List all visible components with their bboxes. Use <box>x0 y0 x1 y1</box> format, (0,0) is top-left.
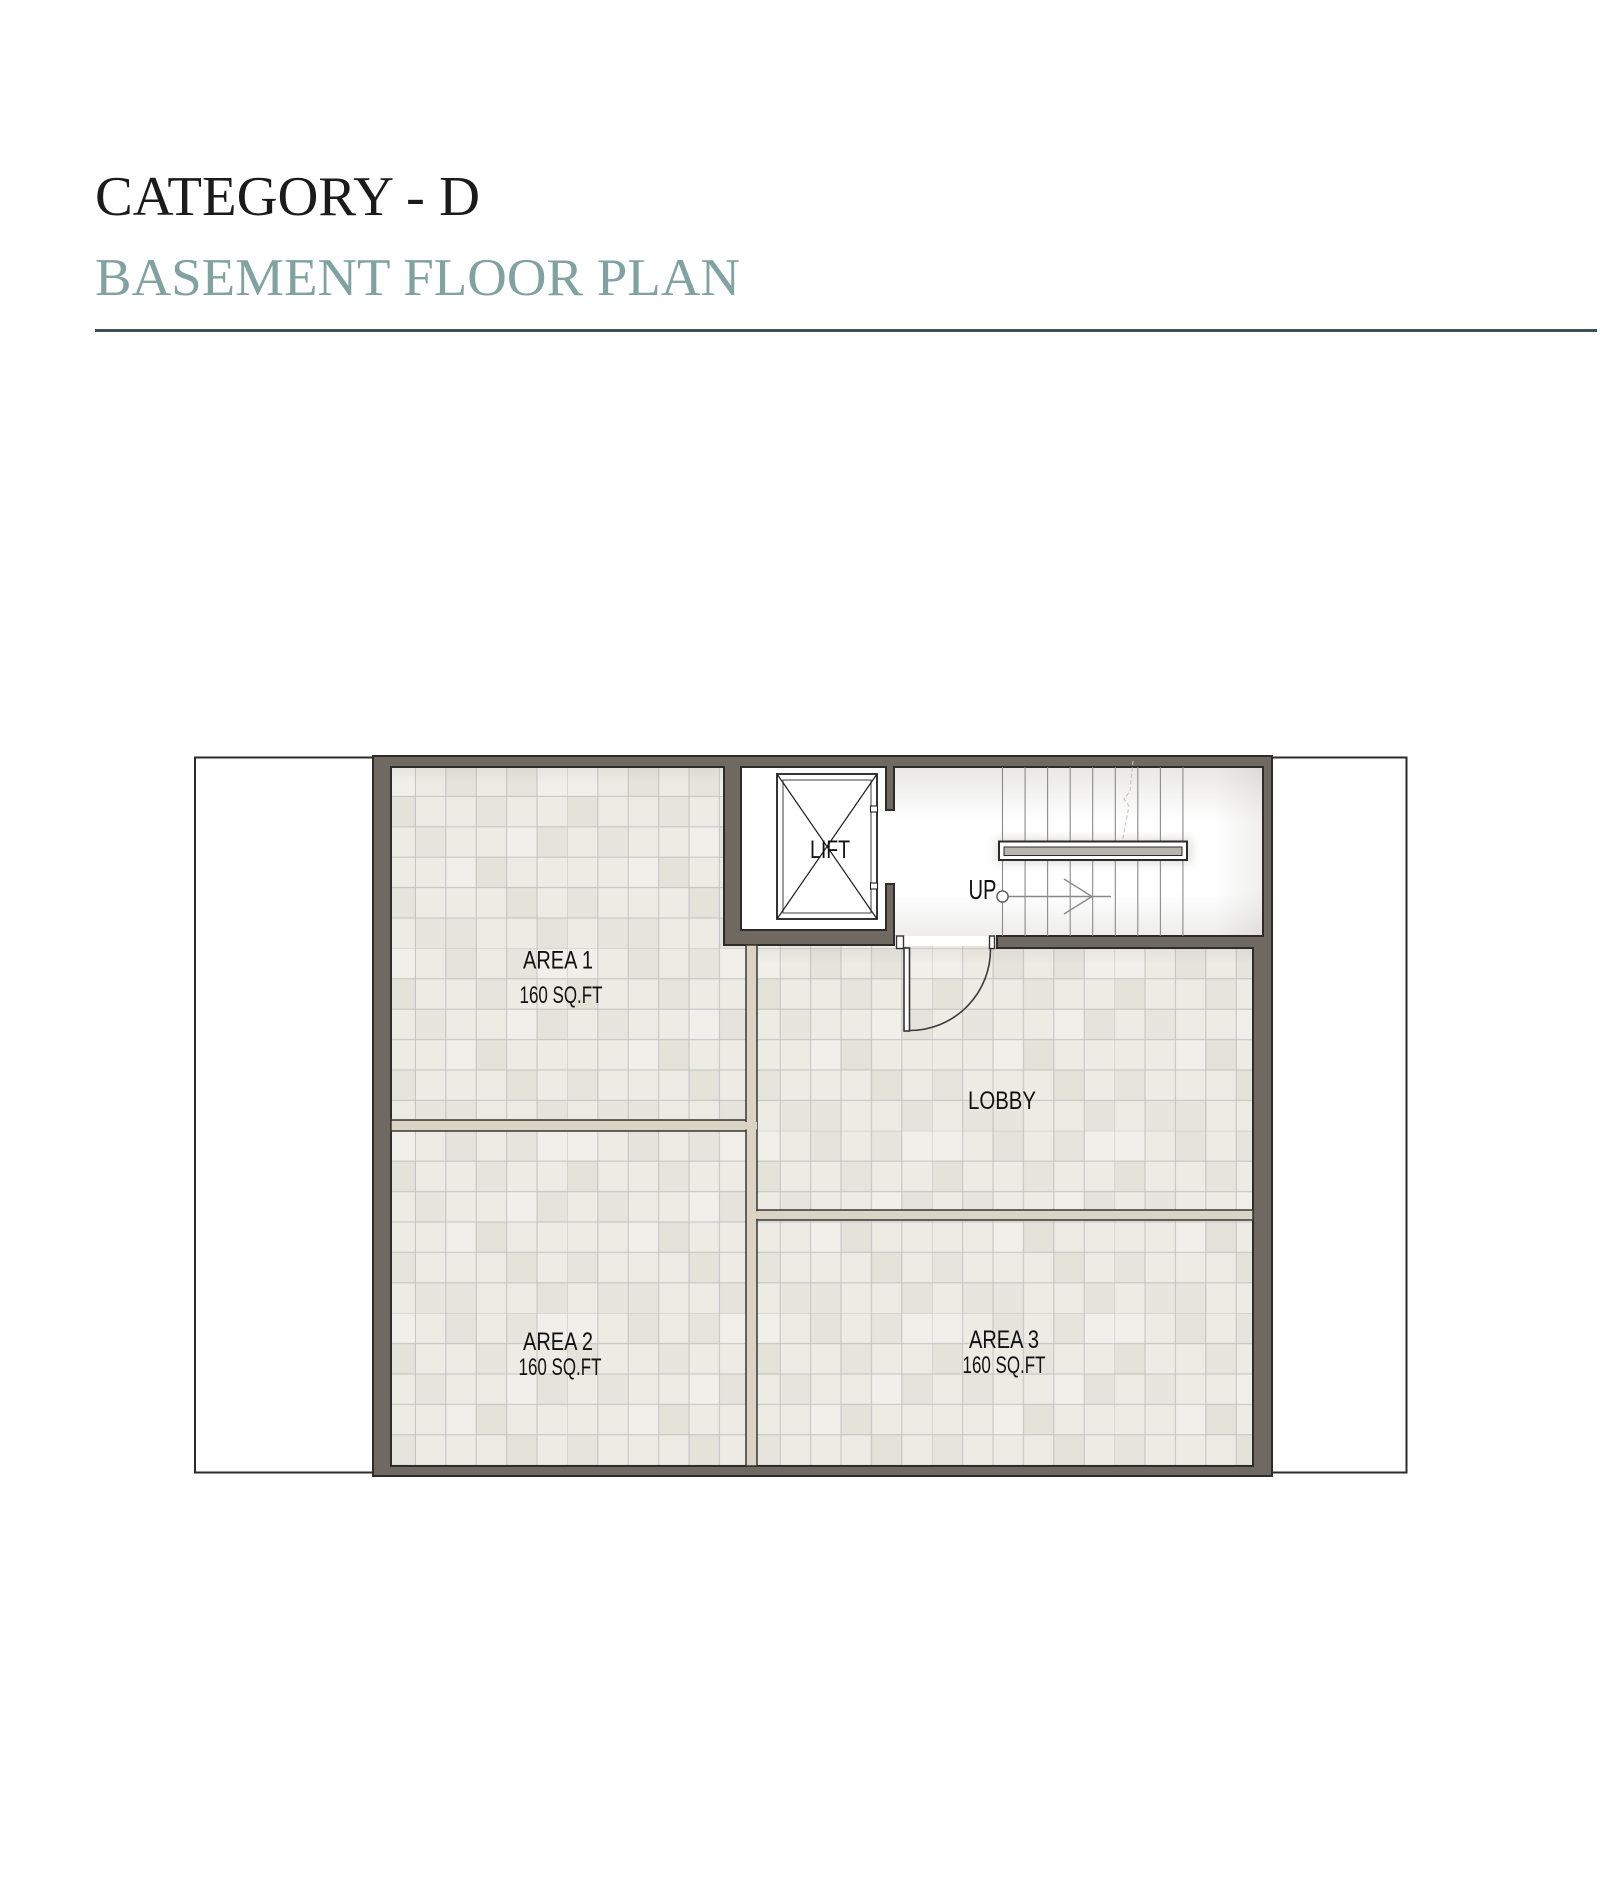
svg-text:AREA 1: AREA 1 <box>523 947 593 975</box>
svg-text:BASEMENT FLOOR PLAN: BASEMENT FLOOR PLAN <box>95 249 740 307</box>
svg-text:AREA 3: AREA 3 <box>969 1326 1039 1354</box>
svg-text:160 SQ.FT: 160 SQ.FT <box>520 982 603 1009</box>
svg-text:UP: UP <box>969 874 997 905</box>
svg-text:LIFT: LIFT <box>810 836 850 864</box>
svg-text:AREA 2: AREA 2 <box>523 1328 593 1356</box>
svg-text:CATEGORY - D: CATEGORY - D <box>95 166 480 228</box>
svg-text:160 SQ.FT: 160 SQ.FT <box>963 1352 1046 1379</box>
svg-text:160 SQ.FT: 160 SQ.FT <box>519 1354 602 1381</box>
svg-text:LOBBY: LOBBY <box>968 1087 1036 1115</box>
